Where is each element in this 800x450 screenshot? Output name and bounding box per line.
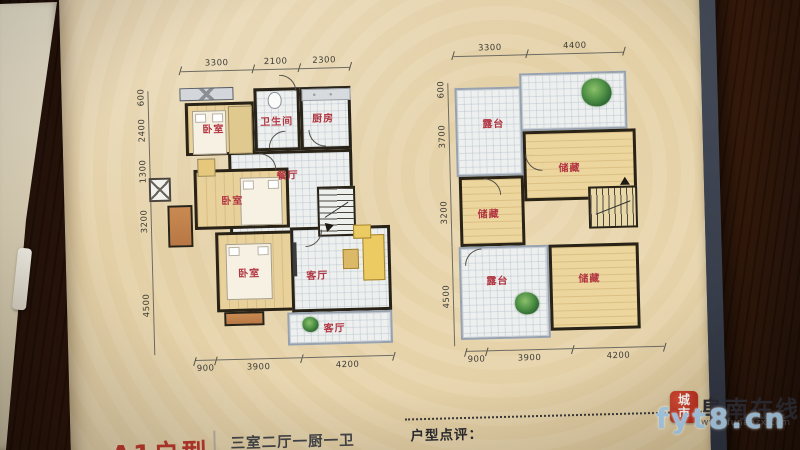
- dim-row-bottom-upper: 900 3900 4200: [466, 346, 664, 364]
- stair-arrow-icon: [620, 172, 630, 185]
- dim-value: 3700: [436, 96, 451, 177]
- plant-icon: [515, 292, 540, 315]
- balcony-side: [167, 205, 193, 248]
- room-label: 客厅: [323, 319, 345, 335]
- dim-value: 4200: [572, 346, 664, 361]
- dim-value: 4500: [140, 256, 156, 355]
- dim-col-left-upper: 600 3700 3200 4500: [435, 83, 455, 346]
- staircase-upper: [588, 185, 638, 228]
- plant-icon: [581, 78, 612, 107]
- dim-value: 4200: [301, 355, 393, 370]
- room-label: 厨房: [312, 109, 334, 125]
- dresser: [197, 158, 215, 176]
- plan-spec-subtitle: 三室二厅一厨一卫: [230, 429, 355, 450]
- coffee-table: [343, 249, 360, 269]
- plan-type-title: A1户型: [110, 433, 209, 450]
- room-label: 储藏: [477, 205, 499, 221]
- staircase-main: [317, 186, 356, 237]
- dim-value: 3900: [486, 348, 572, 363]
- dim-value: 3200: [438, 177, 453, 247]
- dim-row-top-main: 3300 2100 2300: [181, 55, 350, 72]
- room-label: 露台: [486, 272, 508, 288]
- wardrobe: [228, 105, 253, 154]
- dim-value: 600: [135, 91, 148, 104]
- watermark-overlay-text: fyt8.cn: [656, 402, 787, 435]
- dim-value: 900: [195, 359, 215, 373]
- room-label: 客厅: [306, 267, 328, 283]
- balcony-small: [224, 311, 264, 326]
- dim-value: 2400: [136, 104, 150, 157]
- terrace-top-left: [454, 86, 523, 177]
- sofa: [362, 234, 385, 281]
- room-label: 卧室: [238, 264, 260, 280]
- dim-value: 3300: [453, 42, 526, 57]
- dim-value: 3900: [215, 357, 301, 372]
- bed: [240, 177, 283, 226]
- room-label: 储藏: [558, 159, 580, 175]
- dim-value: 4500: [440, 247, 456, 346]
- ac-unit: [179, 87, 233, 101]
- dim-value: 2100: [253, 56, 299, 70]
- dim-col-left-main: 600 2400 1300 3200 4500: [135, 91, 155, 355]
- dim-value: 3300: [181, 57, 253, 72]
- dim-value: 4400: [526, 40, 623, 56]
- dim-row-top-upper: 3300 4400: [453, 40, 623, 57]
- adjacent-page: [0, 0, 62, 450]
- kitchen-counter: [301, 88, 350, 101]
- room-label: 卧室: [221, 192, 243, 208]
- dim-row-bottom-main: 900 3900 4200: [195, 355, 393, 373]
- brochure-page: 3300 2100 2300 600 2400 1300 3200 4500 9…: [59, 0, 712, 450]
- storage-bottom: [549, 242, 641, 330]
- room-label: 储藏: [578, 269, 600, 285]
- terrace-top-right: [519, 71, 627, 132]
- plant-icon: [302, 317, 318, 332]
- shaft-box: [149, 178, 172, 203]
- room-label: 餐厅: [276, 166, 298, 182]
- review-label: 户型点评：: [410, 423, 483, 445]
- dim-value: 900: [466, 350, 486, 364]
- dim-value: 2300: [299, 55, 350, 69]
- room-label: 卧室: [202, 120, 224, 136]
- toilet-icon: [267, 92, 281, 109]
- photo-stage: 3300 2100 2300 600 2400 1300 3200 4500 9…: [0, 0, 800, 450]
- armchair: [353, 224, 371, 238]
- caption-divider: [213, 431, 216, 450]
- tv-cabinet: [292, 242, 297, 276]
- door-arc: [279, 74, 296, 91]
- room-label: 卫生间: [260, 112, 293, 128]
- dim-value: 600: [435, 83, 448, 96]
- room-label: 露台: [482, 115, 504, 131]
